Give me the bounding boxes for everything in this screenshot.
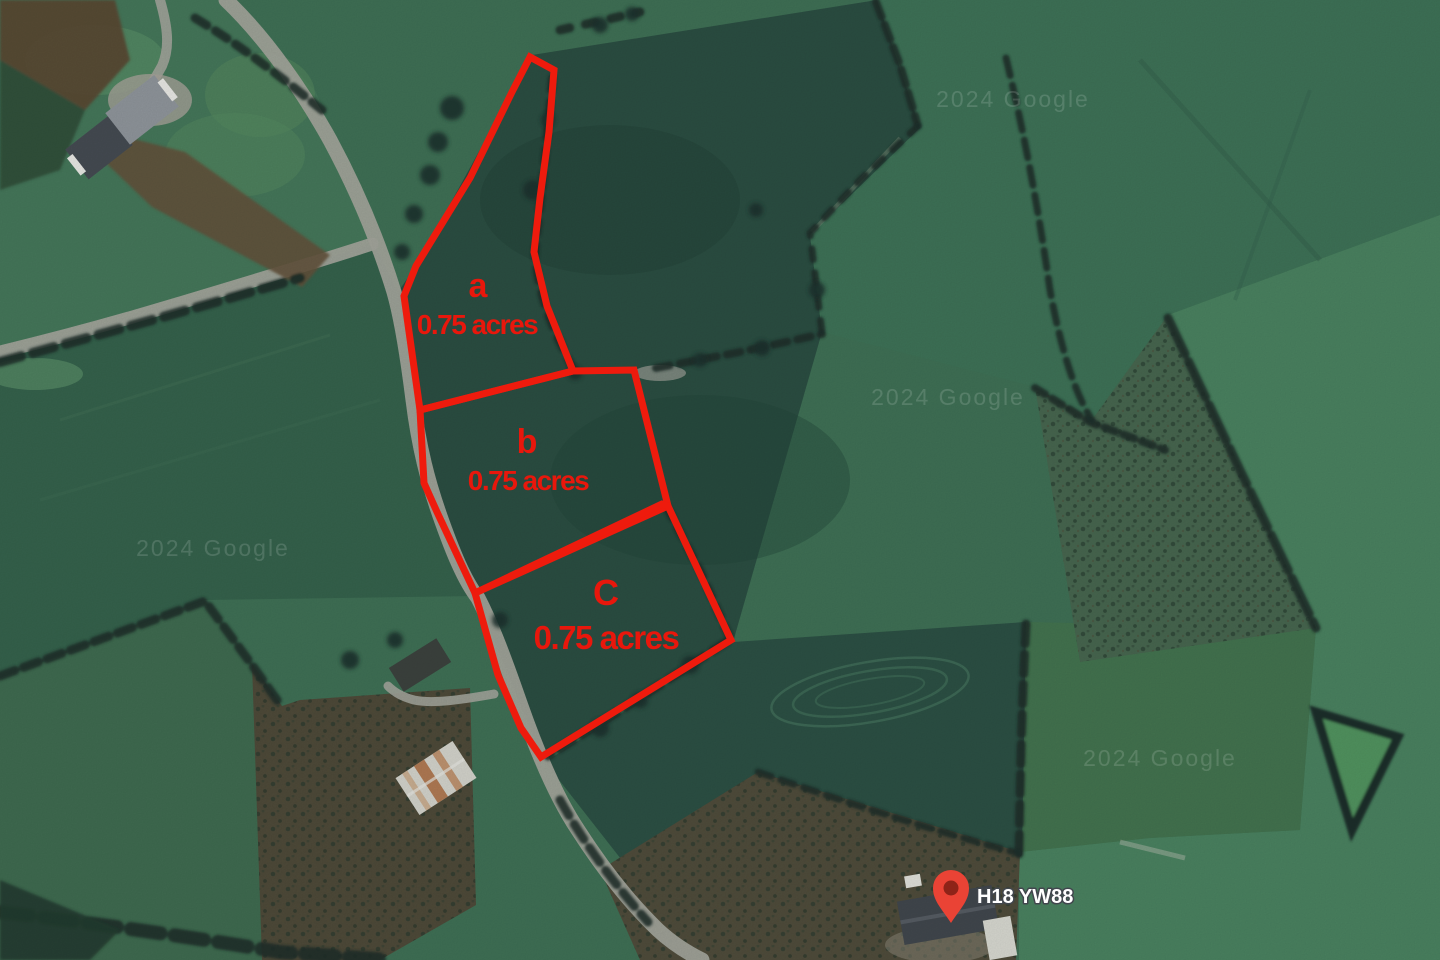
parcel-b-label: b	[517, 423, 538, 461]
parcel-c-label: C	[593, 572, 619, 613]
google-watermark: 2024 Google	[1083, 745, 1237, 771]
pin-label: H18 YW88	[977, 886, 1073, 908]
satellite-map-image: 2024 Google 2024 Google 2024 Google 2024…	[0, 0, 1440, 960]
satellite-grain	[0, 0, 1440, 960]
parcel-a-label: a	[469, 267, 489, 305]
google-watermark: 2024 Google	[871, 384, 1025, 410]
parcel-b-area: 0.75 acres	[468, 465, 589, 496]
parcel-c-area: 0.75 acres	[534, 619, 679, 656]
google-watermark: 2024 Google	[936, 86, 1090, 112]
parcel-a-area: 0.75 acres	[417, 309, 538, 340]
pin-inner-dot	[944, 881, 959, 896]
google-watermark: 2024 Google	[136, 535, 290, 561]
map-canvas: 2024 Google 2024 Google 2024 Google 2024…	[0, 0, 1440, 960]
